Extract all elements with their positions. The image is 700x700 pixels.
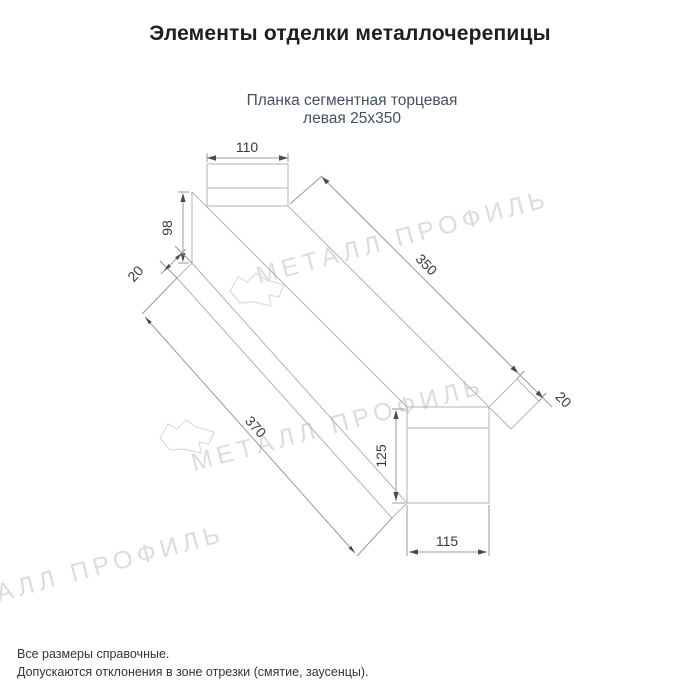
footer-note-line1: Все размеры справочные. xyxy=(17,645,677,663)
flange-near-end-edge xyxy=(177,263,192,278)
flange-outer-edge xyxy=(177,278,392,518)
watermark-text-2: МЕТАЛЛ ПРОФИЛЬ xyxy=(188,372,487,477)
dim-web-height: 98 xyxy=(159,192,189,263)
dim-label-98: 98 xyxy=(159,220,175,236)
dim-label-115: 115 xyxy=(436,533,459,549)
bottom-end-face xyxy=(407,407,489,503)
flange-far-end-edge xyxy=(392,503,407,518)
watermark-layer: МЕТАЛЛ ПРОФИЛЬ МЕТАЛЛ ПРОФИЛЬ МЕТАЛЛ ПРО… xyxy=(0,185,553,625)
dim-end-width: 115 xyxy=(407,505,489,556)
footer-note-line2: Допускаются отклонения в зоне отрезки (с… xyxy=(17,663,677,681)
watermark-text-3: МЕТАЛЛ ПРОФИЛЬ xyxy=(0,520,228,625)
dim-label-350: 350 xyxy=(413,251,441,279)
dim-label-20-right: 20 xyxy=(552,388,574,410)
dim-top-width: 110 xyxy=(207,139,288,162)
top-end-face xyxy=(207,164,288,206)
dim-label-20-left: 20 xyxy=(124,262,146,284)
watermark-text-1: МЕТАЛЛ ПРОФИЛЬ xyxy=(253,185,552,290)
dim-left-flange: 20 xyxy=(124,246,192,285)
footer-notes: Все размеры справочные. Допускаются откл… xyxy=(17,645,677,681)
technical-drawing: МЕТАЛЛ ПРОФИЛЬ МЕТАЛЛ ПРОФИЛЬ МЕТАЛЛ ПРО… xyxy=(0,0,700,700)
dim-label-110: 110 xyxy=(236,139,259,155)
dim-label-125: 125 xyxy=(373,444,389,468)
